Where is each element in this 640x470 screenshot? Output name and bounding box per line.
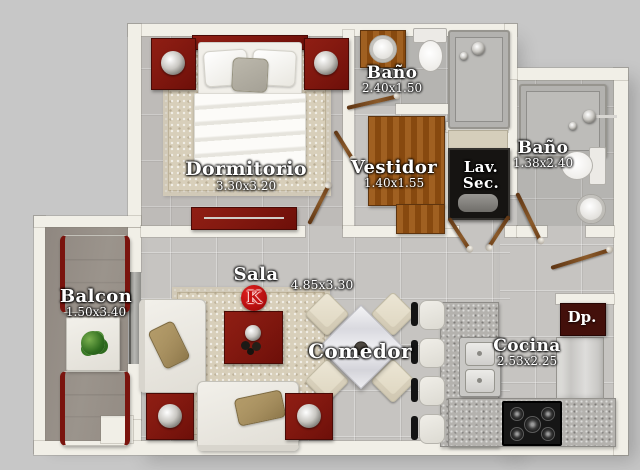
stool-seat (419, 414, 445, 444)
shower-head (583, 110, 596, 123)
stove (502, 401, 562, 446)
toilet-right-bowl (561, 151, 593, 180)
laundry-shelf (448, 130, 508, 150)
side-table-left (146, 393, 194, 440)
table-centerpiece (351, 339, 371, 359)
stool-seat (419, 338, 445, 368)
sofa-pillow (147, 320, 191, 370)
stool-seat (419, 376, 445, 406)
kitchen-sink-unit (459, 337, 501, 397)
sofa-bottom (197, 381, 299, 451)
bed-duvet (194, 93, 306, 175)
logo-badge: K (241, 285, 267, 311)
bath-right-sink (576, 194, 606, 224)
stool-back (411, 416, 418, 440)
balcony-table (66, 317, 120, 371)
laundry-closet (448, 148, 510, 220)
wall-bath-top-south (396, 104, 452, 114)
wall-balcony-top (34, 216, 141, 227)
wall-balcony-left (34, 216, 45, 453)
wall-bath-right-south-b (586, 226, 614, 237)
shower-head-small (569, 122, 577, 130)
side-table-right (285, 393, 333, 440)
burner (524, 416, 541, 433)
sink-basin (465, 342, 495, 366)
plant (81, 331, 105, 355)
drain (477, 378, 482, 383)
bar-stool (411, 375, 443, 405)
sink-basin (465, 369, 495, 393)
nightstand-lamp (314, 51, 338, 75)
shower-top-tray (448, 30, 510, 129)
lounge-chair-bottom (60, 371, 130, 446)
shower-arm (595, 115, 617, 118)
nightstand-lamp (161, 51, 185, 75)
sofa-pillow (234, 389, 287, 426)
coffee-table (224, 311, 283, 364)
bar-stool (411, 337, 443, 367)
bed (198, 42, 302, 174)
bath-top-sink (369, 35, 397, 63)
bath-top-vanity (360, 30, 406, 68)
table-lamp (158, 404, 182, 428)
stool-back (411, 340, 418, 364)
logo-letter: K (247, 288, 262, 308)
floor-plan: Dormitorio 3.30x3.20 Baño 2.40x1.50 Vest… (0, 0, 640, 470)
bed-cushion-gray (231, 57, 269, 93)
bedroom-dresser (191, 207, 297, 230)
decor-dark (241, 341, 250, 350)
room-name: Dp. (568, 308, 597, 326)
wall-bath-right-top (505, 68, 628, 80)
closet-lower (396, 204, 445, 234)
bar-stool (411, 299, 443, 329)
table-lamp (297, 404, 321, 428)
drain (477, 351, 482, 356)
stool-back (411, 302, 418, 326)
label-despensa: Dp. (560, 308, 604, 326)
stool-back (411, 378, 418, 402)
bar-stool (411, 413, 443, 443)
burner (510, 427, 524, 441)
wall-left (128, 24, 141, 228)
stool-seat (419, 300, 445, 330)
burner (541, 427, 555, 441)
nightstand-right (304, 38, 349, 90)
dresser-handle (204, 217, 284, 219)
shower-head-small (460, 52, 468, 60)
decor-sphere (245, 325, 261, 341)
toilet-top-bowl (418, 40, 443, 72)
sofa-left (139, 299, 206, 393)
closet-upper (368, 116, 445, 206)
shower-head (472, 42, 485, 55)
nightstand-left (151, 38, 196, 90)
burner (510, 407, 524, 421)
fridge (556, 337, 604, 399)
lounge-chair-top (60, 235, 130, 313)
wall-right (614, 68, 628, 455)
washing-machine (458, 194, 498, 212)
burner (541, 407, 555, 421)
wall-mid-vertical-low (505, 226, 517, 237)
